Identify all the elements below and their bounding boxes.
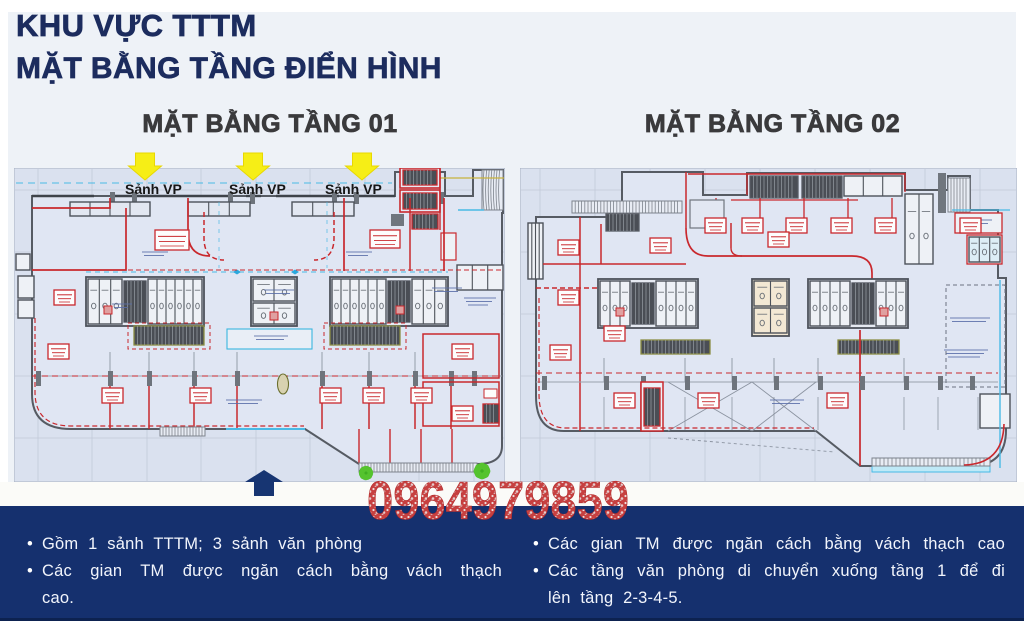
svg-text:0964979859: 0964979859 [367,471,629,526]
